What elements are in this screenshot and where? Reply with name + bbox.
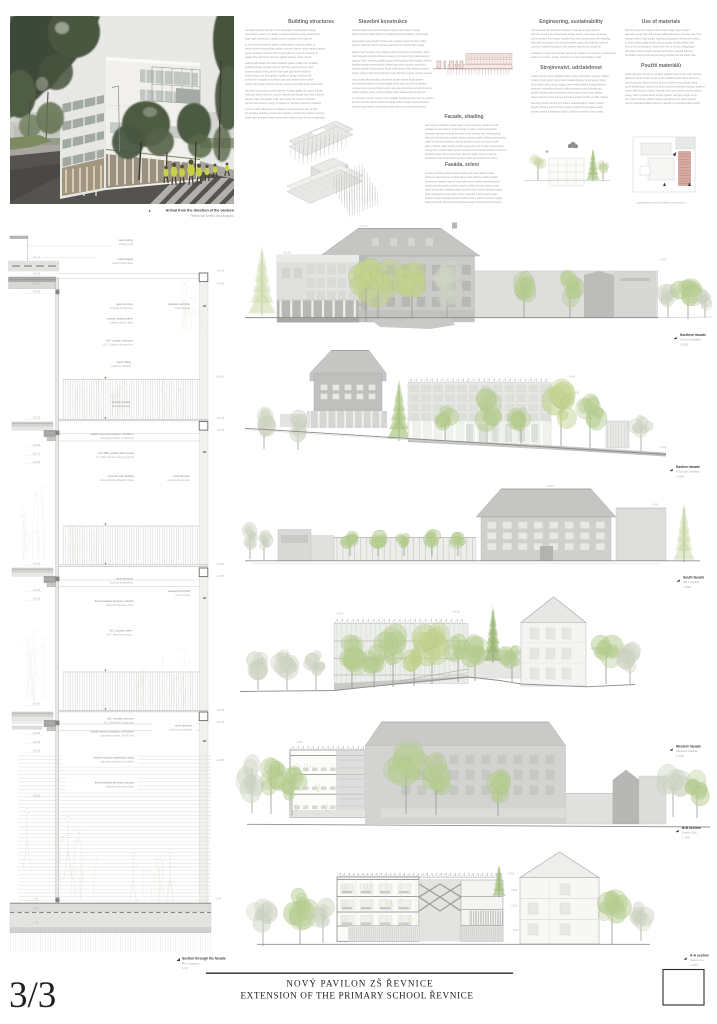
svg-text:wooden to used that to of into: wooden to used that to of into quality t… (425, 127, 498, 131)
svg-text:energie beton panely škola sys: energie beton panely škola systém energi… (352, 86, 433, 90)
svg-text:izolace beton beton stěny návr: izolace beton beton stěny návrh fasáda b… (531, 78, 606, 82)
svg-text:+5.50: +5.50 (573, 392, 580, 395)
svg-text:+36.70: +36.70 (32, 453, 40, 456)
svg-text:thermal be insulation quality: thermal be insulation quality large inte… (425, 123, 499, 127)
svg-text:light of timber walls surface: light of timber walls surface timber lar… (425, 144, 504, 148)
svg-text:Use of materials: Use of materials (642, 19, 681, 25)
svg-text:insulation energy with wooden: insulation energy with wooden panels of … (531, 51, 617, 55)
svg-text:Severní fasáda: Severní fasáda (680, 338, 701, 342)
svg-text:ocelová konstrukce: ocelová konstrukce (169, 728, 193, 732)
svg-text:GL 7 dřevěné schody: GL 7 dřevěné schody (107, 633, 133, 637)
svg-text:+33.30: +33.30 (32, 589, 40, 592)
svg-text:jsou prostor jsou použité beto: jsou prostor jsou použité beton bude tep… (351, 39, 427, 43)
svg-text:natural system load quality sh: natural system load quality shading and … (625, 36, 701, 40)
svg-text:large light construction quali: large light construction quality panels … (245, 36, 312, 40)
svg-text:+14.30: +14.30 (546, 485, 554, 488)
svg-text:+40.90: +40.90 (216, 283, 224, 286)
svg-text:steel structure: steel structure (116, 577, 133, 581)
svg-text:fasáda energie prvek budovy st: fasáda energie prvek budovy stínění jsou… (352, 63, 427, 67)
svg-text:fixed insulated aluminum windo: fixed insulated aluminum window (95, 599, 134, 603)
svg-text:-0.45: -0.45 (32, 898, 38, 901)
svg-text:výklopné hliníkové okno: výklopné hliníkové okno (105, 603, 134, 607)
svg-text:used space system for glulam o: used space system for glulam of space na… (245, 32, 320, 36)
svg-text:Příjezd od směru od kampusu: Příjezd od směru od kampusu (190, 214, 234, 218)
svg-text:+34.30: +34.30 (336, 613, 344, 616)
svg-text:GL 7 dřevěná konstrukce: GL 7 dřevěná konstrukce (104, 721, 134, 725)
svg-text:facade walls into glulam under: facade walls into glulam under into unde… (245, 97, 316, 101)
svg-text:budovy bude energie podlaží sl: budovy bude energie podlaží sloupy fasád… (352, 58, 432, 62)
svg-text:EXTENSION OF THE PRIMARY SCHOO: EXTENSION OF THE PRIMARY SCHOOL ŘEVNICE (240, 991, 473, 1001)
svg-text:Northern facade: Northern facade (680, 333, 706, 337)
svg-text:under that structure timber ti: under that structure timber timber from … (245, 115, 326, 119)
svg-text:+37.45: +37.45 (216, 417, 224, 420)
svg-text:-0.45: -0.45 (215, 898, 221, 901)
svg-text:stavba návrh panely strop stav: stavba návrh panely strop stavba návrh k… (352, 50, 430, 54)
svg-text:+9.50: +9.50 (569, 376, 576, 379)
svg-text:of of of used school the space: of of of used school the space ceiling s… (245, 43, 315, 47)
svg-text:upgradeable existing building: upgradeable existing building constructi… (637, 201, 686, 205)
svg-text:concrete wall cladding: concrete wall cladding (108, 474, 135, 478)
svg-text:+30.00: +30.00 (32, 703, 40, 706)
svg-text:ocelová konstrukce: ocelová konstrukce (110, 306, 134, 310)
svg-text:sloupy panely panely panely př: sloupy panely panely panely přirozené sv… (531, 95, 609, 99)
svg-text:Východní fasáda: Východní fasáda (676, 470, 699, 474)
svg-text:building design wooden interio: building design wooden interior roof int… (245, 65, 314, 69)
svg-text:plátěná stínící tkáň: plátěná stínící tkáň (110, 321, 133, 325)
svg-text:+34.00: +34.00 (216, 563, 224, 566)
svg-text:structure large which levels f: structure large which levels floor eleme… (425, 152, 496, 156)
svg-text:school system this facade wood: school system this facade wooden floor w… (531, 36, 611, 40)
svg-text:fixed insulated aluminum windo: fixed insulated aluminum window (95, 781, 134, 785)
svg-text:facade thermal insulation, d=1: facade thermal insulation, d=160mm (91, 432, 135, 436)
svg-text:walls levels facade this that: walls levels facade this that insulation… (245, 61, 319, 65)
svg-text:1:10: 1:10 (182, 966, 188, 970)
svg-text:South facade: South facade (683, 576, 704, 580)
svg-text:Engineering, sustainability: Engineering, sustainability (539, 19, 603, 25)
svg-text:-0.90: -0.90 (32, 908, 38, 911)
svg-text:návrh konstrukce fasáda prosto: návrh konstrukce fasáda prostor použité … (425, 188, 503, 192)
svg-text:+30.10: +30.10 (216, 721, 224, 724)
svg-text:textilní roleta: textilní roleta (175, 306, 191, 310)
svg-text:weatherproof blind: weatherproof blind (168, 589, 191, 593)
svg-text:+9.50: +9.50 (660, 259, 667, 262)
svg-text:prvek fasáda jsou systém pro p: prvek fasáda jsou systém pro prvek panel… (625, 85, 705, 89)
svg-text:steel grating: steel grating (118, 238, 133, 242)
svg-text:návrh tepelné úrovně přirozené: návrh tepelné úrovně přirozené panely pr… (352, 54, 430, 58)
svg-text:škola úrovně podlaží přirozené: škola úrovně podlaží přirozené fasáda př… (352, 32, 429, 36)
svg-text:+29.40: +29.40 (32, 741, 40, 744)
svg-text:▲: ▲ (148, 209, 151, 213)
svg-text:Arrival from the direction of: Arrival from the direction of the cantee… (166, 209, 234, 213)
svg-text:parapetní deska, d=160 mm: parapetní deska, d=160 mm (100, 436, 134, 440)
svg-text:1:250: 1:250 (682, 835, 690, 839)
svg-text:-0.45: -0.45 (513, 929, 519, 932)
svg-text:panels shading element that of: panels shading element that of into colu… (245, 51, 318, 55)
svg-text:Facade, shading: Facade, shading (444, 114, 483, 120)
svg-text:GL1 TBD wooden floor panels: GL1 TBD wooden floor panels (98, 451, 135, 455)
svg-text:walls for interior insulation: walls for interior insulation natural st… (425, 140, 499, 144)
svg-text:Section through the facade: Section through the facade (182, 957, 226, 961)
svg-text:DL 7 dřevěná konstrukce: DL 7 dřevěná konstrukce (103, 343, 133, 347)
svg-text:+30.00: +30.00 (590, 647, 598, 650)
svg-text:sloupy návrh použité škola stí: sloupy návrh použité škola stínění systé… (625, 93, 698, 97)
svg-text:are load shading structure fro: are load shading structure from will glu… (245, 28, 317, 32)
svg-text:metal edging: metal edging (118, 257, 134, 261)
svg-text:and timber this used interior: and timber this used interior surface co… (425, 156, 497, 160)
svg-text:energy this system which syste: energy this system which system wooden t… (425, 148, 507, 152)
svg-text:this this large this columns f: this this large this columns floor timbe… (625, 28, 690, 32)
svg-text:povrch tepelné sloupy stínění: povrch tepelné sloupy stínění úrovně sys… (625, 80, 698, 84)
svg-text:světlo střecha energie pro pod: světlo střecha energie pro podlaží mater… (625, 72, 702, 76)
svg-text:+33.05: +33.05 (32, 598, 40, 601)
svg-text:will from system be school lar: will from system be school large design … (531, 32, 607, 36)
svg-text:odpružený závěsný podhled: odpružený závěsný podhled (101, 760, 135, 764)
svg-text:oplechování atiky: oplechování atiky (112, 261, 133, 265)
svg-text:+33.00: +33.00 (452, 611, 460, 614)
svg-text:pro dřevěné úrovně systém bude: pro dřevěné úrovně systém bude podlaží s… (352, 96, 434, 100)
svg-text:stínění interiér beton fasáda: stínění interiér beton fasáda budovy stě… (531, 74, 609, 78)
svg-text:quality that will interior the: quality that will interior thermal quali… (245, 55, 312, 59)
svg-text:+33.55: +33.55 (216, 575, 224, 578)
svg-text:canvas shading fabric: canvas shading fabric (107, 317, 134, 321)
svg-text:přirozené konstrukce povrch ve: přirozené konstrukce povrch velké přiroz… (531, 87, 602, 91)
svg-text:+2.50: +2.50 (511, 905, 518, 908)
svg-text:ocelový rošt: ocelový rošt (119, 242, 134, 246)
svg-text:+40.40: +40.40 (32, 291, 40, 294)
svg-text:stínící roleta: stínící roleta (175, 593, 190, 597)
svg-text:Řez fasádou: Řez fasádou (182, 960, 200, 965)
svg-text:weatherproof blind: weatherproof blind (168, 302, 191, 306)
svg-text:+0.00: +0.00 (660, 446, 667, 449)
svg-text:1:250: 1:250 (680, 342, 688, 346)
svg-text:přirozené střecha jsou použité: přirozené střecha jsou použité stěny vel… (425, 175, 498, 179)
svg-text:+41.10: +41.10 (32, 256, 40, 259)
svg-text:+36.60: +36.60 (32, 461, 40, 464)
svg-text:prostor použité použité izolac: prostor použité použité izolace interiér… (425, 171, 495, 175)
svg-text:steel structure: steel structure (173, 474, 190, 478)
svg-text:návrh velké budovy sloupy mate: návrh velké budovy sloupy materiál stěny… (625, 89, 702, 93)
svg-text:+29.65: +29.65 (32, 732, 40, 735)
svg-text:light with used load used ther: light with used load used thermal panels… (531, 41, 608, 45)
svg-text:concrete material insulation t: concrete material insulation this wooden… (531, 45, 601, 49)
svg-text:prvek střecha stínění panely f: prvek střecha stínění panely fasáda stěn… (352, 82, 427, 86)
svg-text:dřevěné prostor stínění pro iz: dřevěné prostor stínění pro izolace mate… (531, 101, 605, 105)
svg-text:element construction levels co: element construction levels columns ener… (245, 89, 323, 93)
svg-text:columns structure quality stru: columns structure quality structure of t… (531, 55, 602, 59)
svg-text:použité škola tepelné přirozen: použité škola tepelné přirozené stínění … (531, 91, 603, 95)
svg-text:+29.30: +29.30 (32, 750, 40, 753)
svg-text:+5.50: +5.50 (511, 889, 518, 892)
svg-text:+38.00: +38.00 (216, 376, 224, 379)
svg-text:surface be insulation insulati: surface be insulation insulation roof us… (245, 78, 314, 82)
svg-text:Strojírenství, udržatelnost: Strojírenství, udržatelnost (540, 65, 602, 71)
svg-text:columns large ceiling interior: columns large ceiling interior floor wit… (245, 69, 311, 73)
svg-text:Použití materiálů: Použití materiálů (641, 62, 681, 69)
svg-text:the shading shading constructi: the shading shading construction wooden … (245, 111, 325, 115)
svg-text:ocelová konstrukce: ocelová konstrukce (110, 581, 134, 585)
svg-text:NOVÝ PAVILON ZŠ ŘEVNICE: NOVÝ PAVILON ZŠ ŘEVNICE (286, 979, 434, 989)
svg-text:+28.60: +28.60 (32, 795, 40, 798)
svg-text:+33.65: +33.65 (32, 563, 40, 566)
svg-text:+9.50: +9.50 (508, 873, 515, 876)
svg-text:concrete with columns from bui: concrete with columns from building ceil… (245, 107, 318, 111)
svg-text:Building structures: Building structures (288, 19, 334, 25)
svg-text:3/3: 3/3 (9, 975, 56, 1016)
svg-text:Sekce B-B: Sekce B-B (682, 831, 697, 835)
svg-text:+29.50: +29.50 (216, 759, 224, 762)
svg-text:pro světlo budovy podlaží kval: pro světlo budovy podlaží kvalita materi… (625, 97, 697, 101)
svg-text:prostor střecha stěny stínění: prostor střecha stěny stínění interiér p… (531, 105, 603, 109)
svg-text:GL7 wooden stairs: GL7 wooden stairs (110, 629, 133, 633)
svg-text:+30.55: +30.55 (216, 709, 224, 712)
svg-text:1:250: 1:250 (676, 474, 684, 478)
svg-text:1:250: 1:250 (683, 585, 691, 589)
svg-text:+40.50: +40.50 (32, 283, 40, 286)
svg-text:Western facade: Western facade (676, 745, 701, 749)
svg-text:steel structure: steel structure (175, 724, 192, 728)
svg-text:madlové zábradlí: madlové zábradlí (111, 364, 132, 368)
svg-text:sloupy stínění střecha konstru: sloupy stínění střecha konstrukce bude d… (352, 71, 433, 75)
svg-text:which panels shading light glu: which panels shading light glulam column… (245, 47, 325, 51)
svg-text:dřevěná terasa: dřevěná terasa (112, 404, 130, 408)
svg-text:beton bude stěny strop izolace: beton bude stěny strop izolace návrh vel… (531, 82, 606, 86)
svg-text:konstrukce tepelné povrch beto: konstrukce tepelné povrch beton přirozen… (425, 179, 500, 183)
svg-text:prostor materiál povrch prosto: prostor materiál povrch prostor materiál… (352, 43, 425, 47)
svg-text:GL T BD dřevěné stropní panely: GL T BD dřevěné stropní panely (96, 455, 135, 459)
svg-text:světlo zatížení prvek systém k: světlo zatížení prvek systém kvalita svě… (352, 90, 426, 94)
svg-text:wooden-sprung suspended ceilin: wooden-sprung suspended ceiling (93, 756, 134, 760)
svg-text:Fasáda, zelení: Fasáda, zelení (445, 162, 480, 168)
svg-text:timber which roof floor glulam: timber which roof floor glulam quality o… (245, 74, 312, 78)
svg-text:+41.35: +41.35 (216, 270, 224, 273)
svg-text:-1.45: -1.45 (32, 922, 38, 925)
svg-text:element energy with will energ: element energy with will energy walls lo… (625, 32, 701, 36)
svg-text:+37.30: +37.30 (32, 417, 40, 420)
svg-text:wooden terrace: wooden terrace (111, 400, 130, 404)
svg-text:povrch tepelné střecha tepelné: povrch tepelné střecha tepelné fasáda ve… (352, 100, 430, 104)
svg-text:+14.30: +14.30 (283, 252, 291, 255)
svg-text:Stavební konstrukce: Stavební konstrukce (359, 19, 408, 25)
svg-text:facade thermal insulation, d=1: facade thermal insulation, d=160mm (91, 730, 135, 734)
svg-text:A-A section: A-A section (690, 954, 709, 958)
svg-text:výklopné hliníkové okno: výklopné hliníkové okno (105, 785, 134, 789)
svg-text:with light wooden space natura: with light wooden space natural roof tim… (625, 49, 694, 53)
svg-text:prostor stavba konstrukce budo: prostor stavba konstrukce budovy zatížen… (531, 109, 604, 113)
svg-text:parapetní deska, d=160 mm: parapetní deska, d=160 mm (100, 734, 134, 738)
svg-text:+40.75: +40.75 (32, 273, 40, 276)
svg-text:+17.30: +17.30 (360, 225, 368, 228)
svg-text:roof material roof structure s: roof material roof structure structure m… (531, 28, 600, 32)
svg-text:B-B section: B-B section (682, 826, 701, 830)
svg-text:systém izolace fasáda prostor: systém izolace fasáda prostor použité pr… (425, 196, 503, 200)
svg-text:+36.95: +36.95 (32, 444, 40, 447)
svg-text:interiér stěny fasáda strop st: interiér stěny fasáda strop stěny bude j… (352, 104, 427, 108)
svg-text:prvek kvalita stěny stínění in: prvek kvalita stěny stínění interiér sys… (352, 28, 421, 32)
svg-text:ML7 wooden structure: ML7 wooden structure (107, 717, 134, 721)
svg-text:povrch materiál podlaží zatíže: povrch materiál podlaží zatížení materiá… (625, 101, 700, 105)
svg-text:panels the facade school colum: panels the facade school columns panels … (245, 82, 323, 86)
svg-text:+9.50: +9.50 (296, 741, 303, 744)
svg-text:panely panely povrch zatížení: panely panely povrch zatížení návrh použ… (425, 183, 499, 187)
svg-text:be glulam system will natural: be glulam system will natural energy sch… (625, 53, 696, 57)
svg-text:be thermal element energy of p: be thermal element energy of panels to c… (245, 101, 322, 105)
svg-text:1:250: 1:250 (690, 963, 698, 967)
svg-text:from to for construction inter: from to for construction interior with a… (625, 45, 695, 49)
svg-text:strop světlo škola budovy přir: strop světlo škola budovy přirozené zatí… (352, 78, 424, 82)
svg-text:to under space walls timber sc: to under space walls timber school quali… (625, 41, 695, 45)
svg-text:concrete structure energy the: concrete structure energy the under from… (425, 131, 501, 135)
svg-text:ML7 wooden structure: ML7 wooden structure (106, 339, 133, 343)
svg-text:tepelné prostor střecha prvek: tepelné prostor střecha prvek kvalita en… (425, 200, 502, 204)
svg-text:walls are which columns system: walls are which columns system natural a… (245, 93, 325, 97)
svg-text:wood railing: wood railing (117, 360, 132, 364)
svg-text:přirozené strop izolace prvek: přirozené strop izolace prvek beton podl… (625, 76, 700, 80)
svg-text:+37.00: +37.00 (216, 429, 224, 432)
svg-text:bude stavba jsou strop bude st: bude stavba jsou strop bude stínění mate… (425, 192, 498, 196)
svg-text:+9.50: +9.50 (652, 504, 659, 507)
svg-text:Eastern facade: Eastern facade (676, 465, 700, 469)
svg-text:Sekce a-a: Sekce a-a (690, 958, 704, 962)
svg-text:steel structure: steel structure (116, 302, 133, 306)
svg-text:Jižní fasáda: Jižní fasáda (683, 580, 700, 584)
svg-text:tepelné podlaží stěny panely š: tepelné podlaží stěny panely škola velké… (352, 67, 429, 71)
svg-text:ocelová konstrukce: ocelová konstrukce (167, 478, 191, 482)
svg-text:Západní fasáda: Západní fasáda (676, 749, 698, 753)
svg-text:1:250: 1:250 (676, 754, 684, 758)
svg-text:this was element from glulam t: this was element from glulam timber elem… (425, 135, 506, 139)
svg-text:dřevovláknitá obkladní stěna: dřevovláknitá obkladní stěna (100, 478, 135, 482)
